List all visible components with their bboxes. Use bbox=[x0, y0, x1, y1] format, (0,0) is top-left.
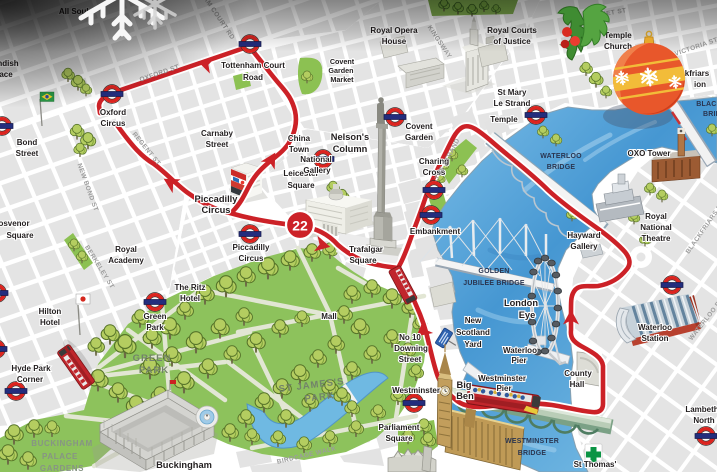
svg-text:Garden: Garden bbox=[405, 133, 433, 142]
svg-text:St Thomas': St Thomas' bbox=[574, 460, 617, 469]
svg-text:Gallery: Gallery bbox=[303, 166, 331, 175]
svg-text:GOLDEN: GOLDEN bbox=[478, 268, 509, 275]
svg-text:The Ritz: The Ritz bbox=[174, 283, 205, 292]
svg-text:Temple: Temple bbox=[490, 115, 518, 124]
svg-text:BLACK: BLACK bbox=[696, 101, 717, 108]
svg-text:Piccadilly: Piccadilly bbox=[195, 194, 239, 204]
svg-text:Garden: Garden bbox=[328, 66, 353, 75]
svg-text:Mall: Mall bbox=[321, 312, 337, 321]
svg-text:WATERLOO: WATERLOO bbox=[540, 153, 582, 160]
svg-text:GREEN: GREEN bbox=[133, 353, 172, 364]
svg-text:Westminster: Westminster bbox=[478, 374, 526, 383]
svg-text:kfriars: kfriars bbox=[685, 69, 710, 78]
svg-text:Trafalgar: Trafalgar bbox=[349, 245, 383, 254]
svg-text:Hall: Hall bbox=[570, 380, 585, 389]
svg-text:BRIDGE: BRIDGE bbox=[547, 164, 576, 171]
svg-text:Academy: Academy bbox=[108, 256, 144, 265]
svg-text:Eye: Eye bbox=[519, 310, 536, 320]
svg-text:County: County bbox=[564, 369, 592, 378]
svg-text:Square: Square bbox=[287, 181, 315, 190]
svg-text:WESTMINSTER: WESTMINSTER bbox=[505, 438, 559, 445]
svg-text:Street: Street bbox=[16, 149, 39, 158]
svg-text:Royal: Royal bbox=[115, 245, 137, 254]
svg-text:ion: ion bbox=[694, 80, 706, 89]
svg-text:Hyde Park: Hyde Park bbox=[11, 364, 51, 373]
svg-text:JUBILEE BRIDGE: JUBILEE BRIDGE bbox=[463, 280, 525, 287]
svg-text:Pier: Pier bbox=[496, 384, 511, 393]
svg-text:Street: Street bbox=[206, 140, 229, 149]
svg-text:London: London bbox=[504, 298, 538, 308]
svg-text:Waterloo: Waterloo bbox=[638, 323, 672, 332]
svg-text:BUCKINGHAM: BUCKINGHAM bbox=[31, 439, 93, 448]
svg-text:Scotland: Scotland bbox=[456, 328, 490, 337]
svg-text:Nelson's: Nelson's bbox=[331, 132, 369, 142]
svg-text:New: New bbox=[465, 316, 482, 325]
svg-text:Square: Square bbox=[349, 256, 377, 265]
svg-text:Circus: Circus bbox=[239, 254, 264, 263]
svg-text:No 10: No 10 bbox=[399, 333, 421, 342]
svg-text:Pier: Pier bbox=[511, 356, 526, 365]
svg-text:Buckingham: Buckingham bbox=[156, 460, 212, 470]
svg-text:BRID: BRID bbox=[703, 111, 717, 118]
svg-text:Circus: Circus bbox=[202, 205, 231, 215]
svg-text:GARDENS: GARDENS bbox=[40, 464, 84, 472]
svg-text:Square: Square bbox=[385, 434, 413, 443]
svg-text:National: National bbox=[640, 223, 672, 232]
svg-text:Royal: Royal bbox=[645, 212, 667, 221]
svg-text:Le Strand: Le Strand bbox=[494, 99, 531, 108]
svg-text:Piccadilly: Piccadilly bbox=[233, 243, 270, 252]
svg-text:China: China bbox=[288, 134, 311, 143]
svg-text:BRIDGE: BRIDGE bbox=[518, 450, 547, 457]
svg-text:22: 22 bbox=[292, 218, 308, 234]
svg-text:National: National bbox=[300, 155, 332, 164]
svg-text:Hotel: Hotel bbox=[40, 318, 60, 327]
svg-text:OXO Tower: OXO Tower bbox=[628, 149, 671, 158]
svg-text:PARK: PARK bbox=[139, 365, 169, 376]
svg-text:St Mary: St Mary bbox=[498, 88, 527, 97]
svg-text:Town: Town bbox=[289, 145, 309, 154]
svg-text:Circus: Circus bbox=[101, 119, 126, 128]
svg-text:Corner: Corner bbox=[17, 375, 43, 384]
svg-text:Hayward: Hayward bbox=[567, 231, 600, 240]
svg-text:PALACE: PALACE bbox=[42, 452, 78, 461]
svg-text:Oxford: Oxford bbox=[100, 108, 126, 117]
svg-text:Lambeth: Lambeth bbox=[685, 405, 717, 414]
svg-text:Hotel: Hotel bbox=[180, 294, 200, 303]
svg-text:Theatre: Theatre bbox=[642, 234, 671, 243]
svg-text:Downing: Downing bbox=[394, 344, 428, 353]
svg-text:Yard: Yard bbox=[464, 340, 481, 349]
svg-text:North: North bbox=[693, 416, 714, 425]
svg-text:Park: Park bbox=[146, 323, 164, 332]
svg-text:Gallery: Gallery bbox=[570, 242, 598, 251]
svg-text:osvenor: osvenor bbox=[0, 219, 30, 228]
svg-text:Covent: Covent bbox=[330, 57, 355, 66]
svg-text:Market: Market bbox=[330, 75, 354, 84]
svg-text:Street: Street bbox=[399, 355, 422, 364]
svg-text:Carnaby: Carnaby bbox=[201, 129, 234, 138]
svg-text:Station: Station bbox=[641, 334, 668, 343]
svg-text:Hilton: Hilton bbox=[39, 307, 62, 316]
svg-text:Square: Square bbox=[6, 231, 34, 240]
svg-text:Bond: Bond bbox=[17, 138, 38, 147]
svg-text:Parliament: Parliament bbox=[379, 423, 420, 432]
svg-text:Green: Green bbox=[143, 312, 166, 321]
svg-text:Column: Column bbox=[333, 144, 368, 154]
svg-text:Westminster: Westminster bbox=[392, 386, 440, 395]
svg-text:Ben: Ben bbox=[456, 391, 474, 401]
svg-text:Covent: Covent bbox=[405, 122, 432, 131]
svg-text:Big: Big bbox=[457, 380, 472, 390]
svg-text:Waterloo: Waterloo bbox=[503, 346, 537, 355]
svg-text:Embankment: Embankment bbox=[410, 227, 461, 236]
